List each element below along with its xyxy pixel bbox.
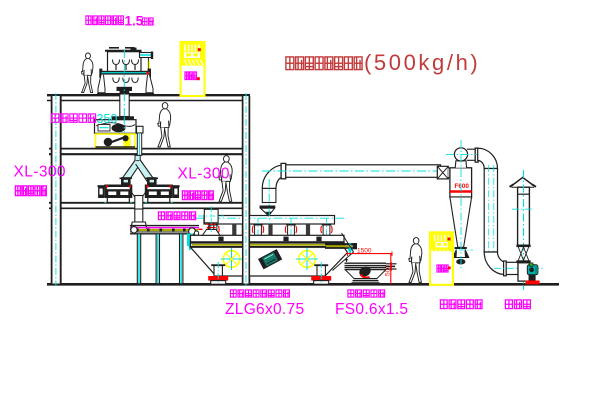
svg-text:1500: 1500 bbox=[357, 248, 372, 255]
svg-text:(500kg/h): (500kg/h) bbox=[364, 50, 480, 75]
svg-text:F600: F600 bbox=[455, 183, 470, 190]
svg-text:FS0.6x1.5: FS0.6x1.5 bbox=[335, 301, 408, 318]
svg-text:1.5: 1.5 bbox=[125, 14, 144, 29]
svg-text:ZLG6x0.75: ZLG6x0.75 bbox=[225, 301, 304, 318]
svg-text:XL-300: XL-300 bbox=[178, 166, 230, 183]
svg-text:XL-300: XL-300 bbox=[14, 164, 66, 181]
svg-text:350: 350 bbox=[97, 112, 118, 126]
